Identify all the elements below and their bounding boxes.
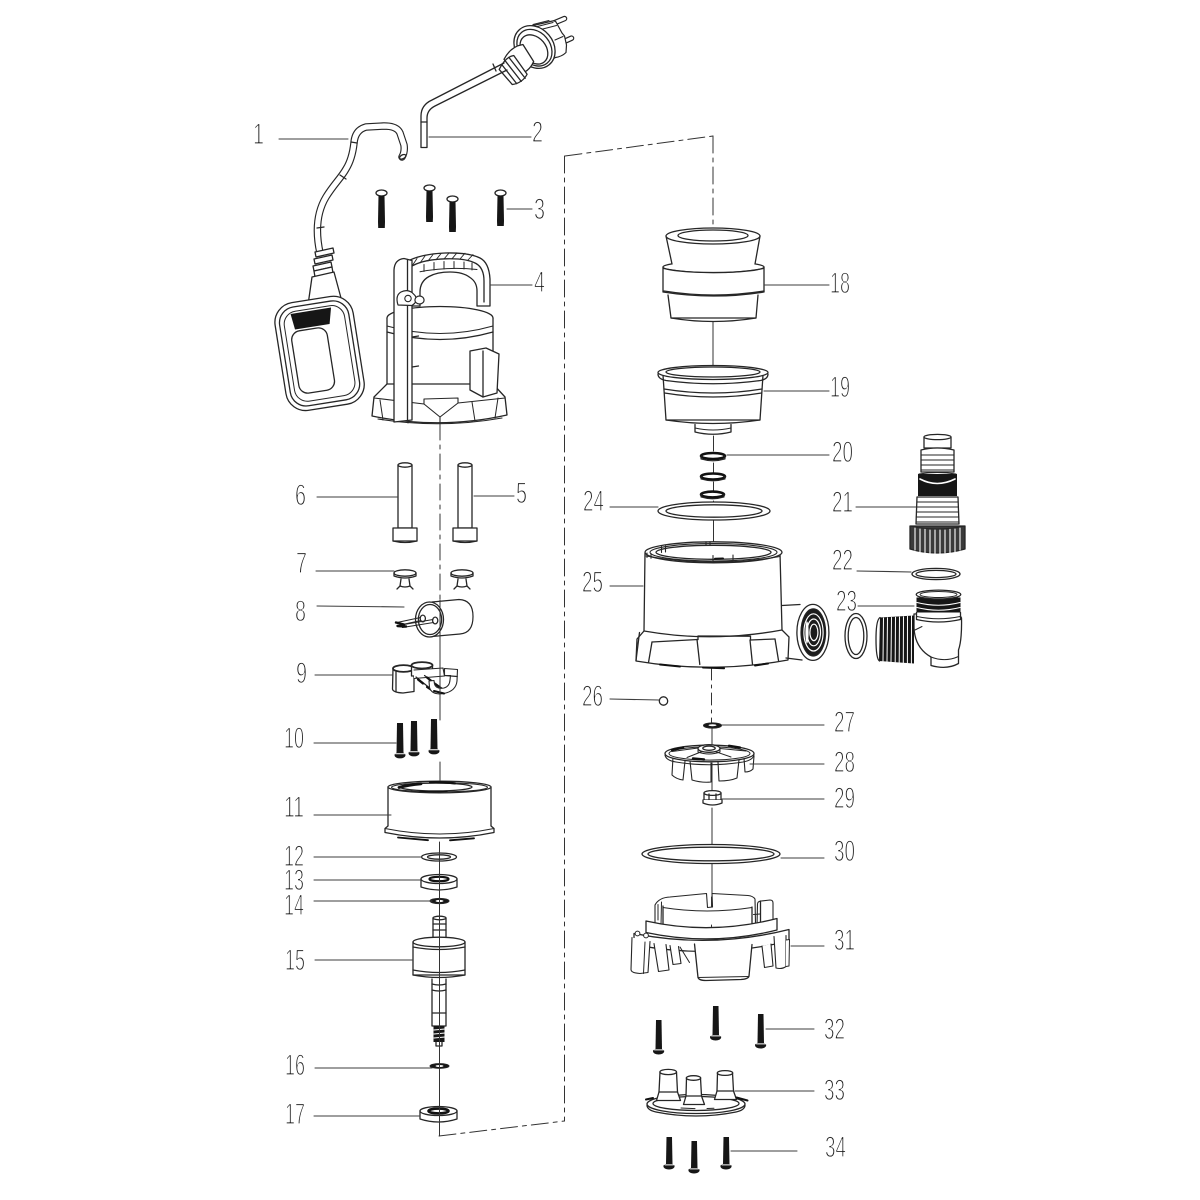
svg-text:15: 15 xyxy=(285,944,305,977)
svg-text:29: 29 xyxy=(834,782,855,815)
svg-text:23: 23 xyxy=(836,585,857,618)
svg-text:28: 28 xyxy=(834,746,855,779)
svg-text:34: 34 xyxy=(825,1131,846,1164)
svg-text:25: 25 xyxy=(582,566,603,599)
svg-text:14: 14 xyxy=(284,889,304,922)
svg-text:17: 17 xyxy=(285,1098,305,1131)
svg-text:3: 3 xyxy=(534,193,545,226)
svg-text:6: 6 xyxy=(295,479,306,512)
svg-text:33: 33 xyxy=(824,1074,845,1107)
svg-text:22: 22 xyxy=(832,544,853,577)
svg-text:24: 24 xyxy=(583,485,604,518)
svg-text:11: 11 xyxy=(284,791,304,824)
svg-text:31: 31 xyxy=(834,924,855,957)
svg-text:7: 7 xyxy=(296,547,307,580)
svg-text:9: 9 xyxy=(296,657,307,690)
svg-text:32: 32 xyxy=(824,1013,845,1046)
svg-text:19: 19 xyxy=(830,371,850,404)
svg-text:20: 20 xyxy=(832,436,853,469)
svg-text:2: 2 xyxy=(532,116,543,149)
svg-text:5: 5 xyxy=(516,477,527,510)
svg-text:27: 27 xyxy=(834,706,855,739)
svg-text:21: 21 xyxy=(832,486,853,519)
svg-text:16: 16 xyxy=(285,1049,305,1082)
svg-text:26: 26 xyxy=(582,680,603,713)
svg-text:4: 4 xyxy=(534,266,545,299)
svg-text:1: 1 xyxy=(253,118,264,151)
svg-text:10: 10 xyxy=(284,722,304,755)
svg-text:18: 18 xyxy=(830,267,850,300)
svg-text:30: 30 xyxy=(834,835,855,868)
svg-text:8: 8 xyxy=(295,595,306,628)
